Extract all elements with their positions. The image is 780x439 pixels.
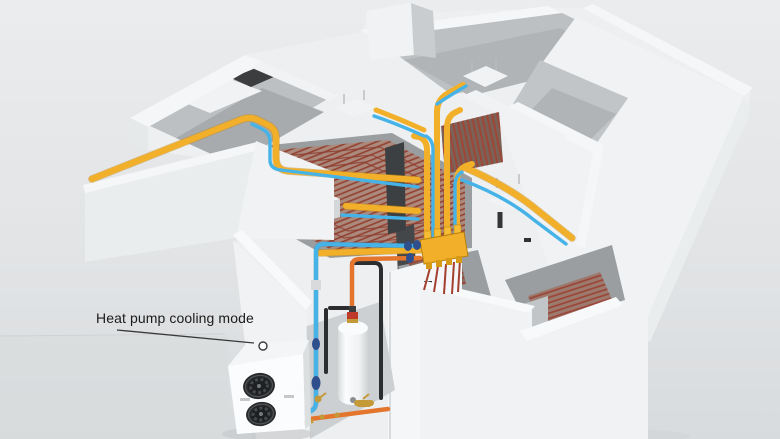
scene-canvas: Heat pump cooling mode [0, 0, 780, 439]
riser-back-panel [385, 142, 406, 234]
coupling [311, 280, 321, 290]
tank-valve-cap [349, 306, 356, 312]
sensor-fitting [312, 338, 320, 350]
tank-valve-nut [347, 319, 358, 323]
coupling [320, 415, 325, 420]
wall-socket-detail [524, 238, 531, 242]
manifold-port-lower [446, 258, 452, 265]
tall-wall-front [366, 3, 414, 60]
leader-marker [259, 342, 267, 350]
pipe-connector [404, 241, 412, 251]
annotation-label: Heat pump cooling mode [96, 310, 254, 326]
heat-pump-logo [240, 398, 250, 401]
manifold-port-lower [426, 262, 432, 269]
ground-plane-left [0, 336, 228, 439]
pump-fitting [312, 376, 321, 390]
front-wall-left-face [420, 287, 532, 439]
heat-pump-cooling-illustration: Heat pump cooling mode [0, 0, 780, 439]
pipe-connector [413, 240, 421, 250]
coupling [335, 413, 340, 418]
valve [354, 400, 360, 406]
pipe-connector [406, 253, 414, 263]
tall-wall-side [411, 3, 436, 58]
duct-run-lower [320, 250, 420, 253]
manifold-port-lower [436, 260, 442, 267]
valve [368, 400, 374, 406]
manifold-port-lower [456, 256, 462, 263]
tank-top [338, 321, 368, 335]
heat-pump-logo [284, 395, 294, 398]
tank-valve-red [347, 312, 358, 319]
